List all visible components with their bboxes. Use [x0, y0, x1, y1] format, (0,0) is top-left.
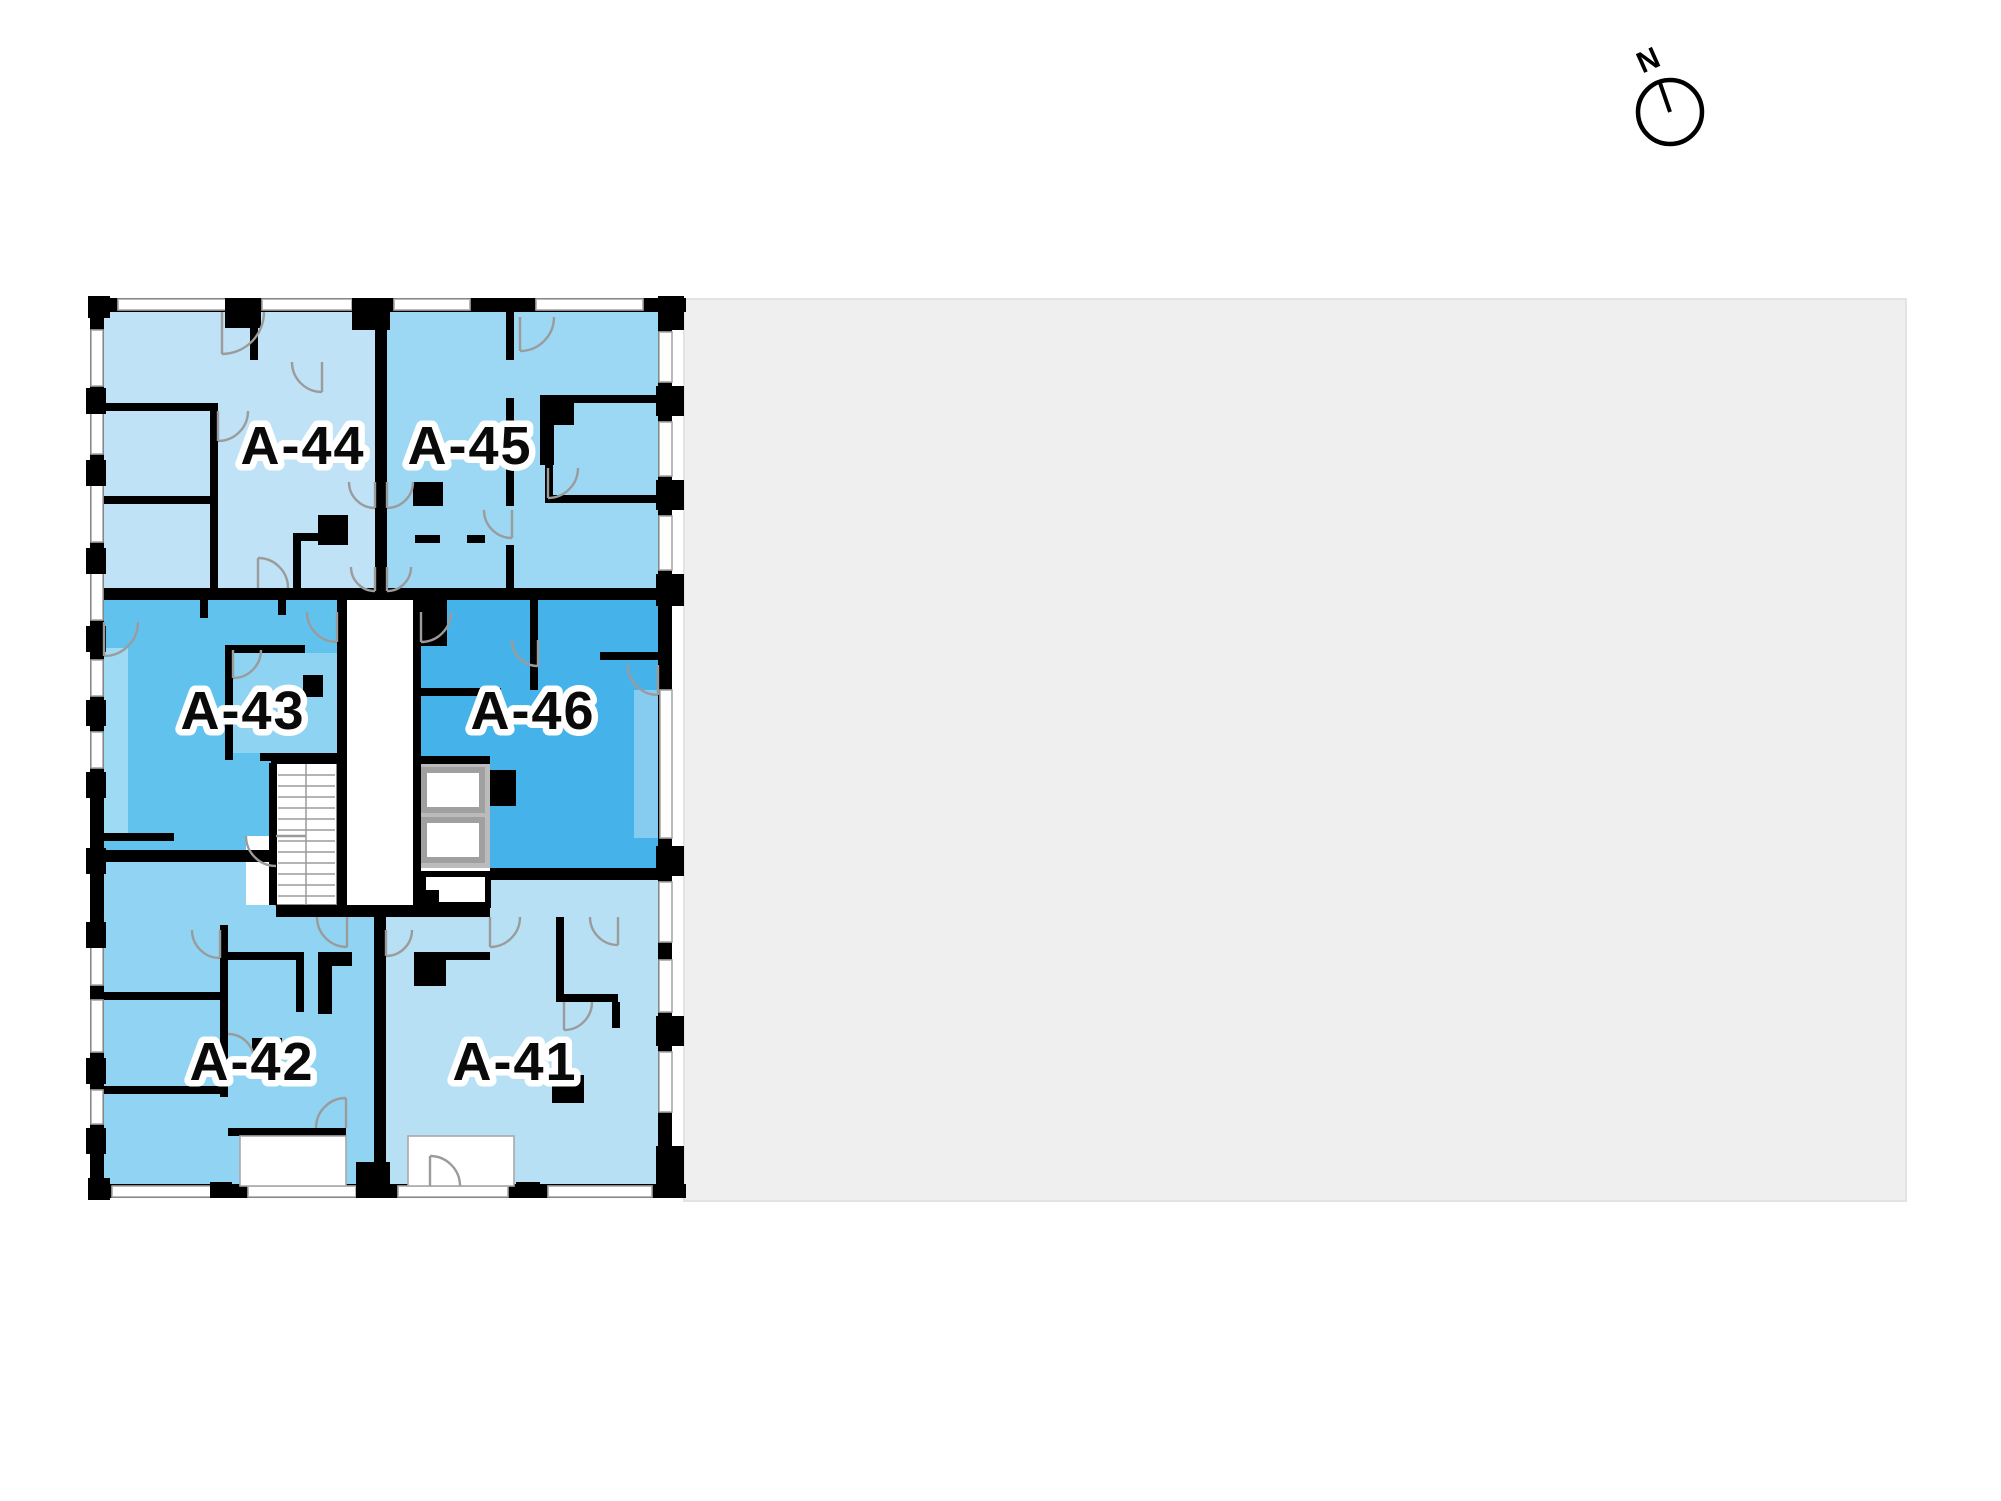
unit-label-a46[interactable]: A-46	[470, 681, 595, 741]
service-room-closet	[423, 890, 439, 905]
compass: N	[1632, 41, 1702, 144]
unit-label-a43[interactable]: A-43	[180, 681, 305, 741]
a43-left-balcony	[104, 648, 128, 836]
a46-right-balcony	[634, 690, 658, 838]
site-area	[684, 299, 1906, 1201]
site-area-rect	[684, 299, 1906, 1201]
unit-label-a44[interactable]: A-44	[240, 416, 365, 476]
elevator-2	[424, 820, 482, 860]
unit-label-a42[interactable]: A-42	[189, 1032, 314, 1092]
compass-needle	[1659, 80, 1670, 112]
compass-north-label: N	[1632, 41, 1665, 80]
corridor	[347, 600, 413, 917]
unit-label-a45[interactable]: A-45	[407, 416, 532, 476]
floor-plan-canvas: A-44 A-45 A-43 A-46 A-42 A-41 N	[0, 0, 2001, 1501]
elevator-1	[424, 770, 482, 810]
unit-label-a41[interactable]: A-41	[452, 1032, 577, 1092]
